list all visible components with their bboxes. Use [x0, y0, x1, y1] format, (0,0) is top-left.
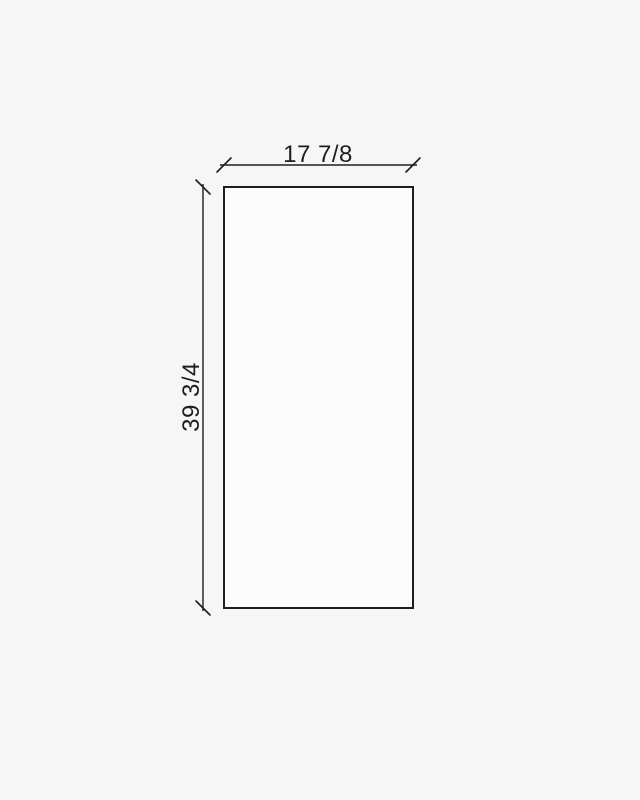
dimension-diagram: 17 7/8 39 3/4 [0, 0, 640, 800]
height-dimension-label: 39 3/4 [178, 362, 205, 432]
panel-outline [224, 187, 413, 608]
width-dimension-label: 17 7/8 [283, 141, 353, 168]
dimension-diagram-canvas: 17 7/8 39 3/4 [0, 0, 640, 800]
